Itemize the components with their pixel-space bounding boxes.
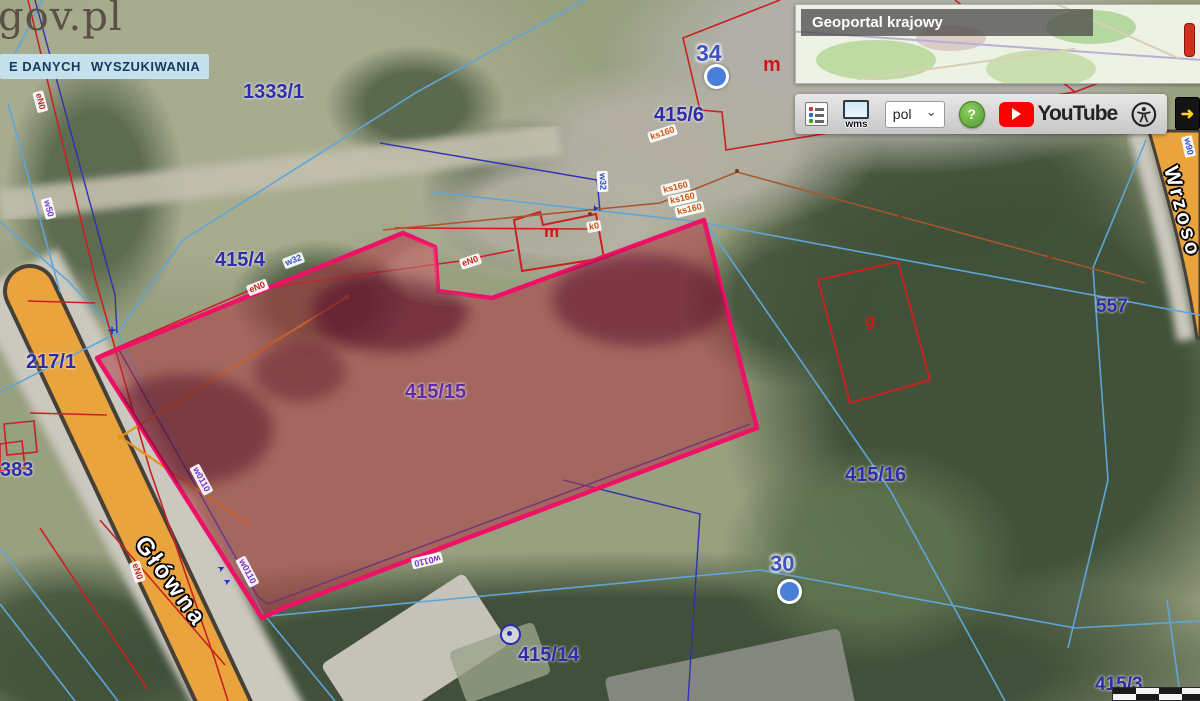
expand-panel-button[interactable]: ➜: [1175, 97, 1200, 130]
parcel-label-highlighted: 415/15: [405, 381, 466, 404]
building-label: g: [865, 311, 875, 331]
wms-service-icon[interactable]: wms: [842, 100, 871, 128]
address-point-34: [704, 64, 729, 89]
accessibility-icon[interactable]: [1131, 101, 1157, 128]
tab-dane[interactable]: E DANYCH: [0, 54, 90, 79]
map-viewport[interactable]: + ➤ ➤ ➤ 1333/1 415/6 415/4 217/1 383 415…: [0, 0, 1200, 701]
youtube-play-icon: [999, 102, 1034, 127]
minimap-title: Geoportal krajowy: [801, 9, 1093, 36]
parcel-label: 217/1: [26, 351, 76, 374]
language-value: pol: [893, 106, 912, 122]
sewer-utility-line: [383, 169, 1145, 283]
parcel-label: 415/14: [518, 644, 579, 667]
youtube-link[interactable]: YouTube: [999, 102, 1118, 127]
address-number: 34: [696, 40, 722, 67]
minimap-terrain: [986, 50, 1096, 84]
parcel-label: 415/6: [654, 104, 704, 127]
map-toolbar: wms pol ⌄ ? YouTube: [795, 94, 1167, 134]
parcel-label: 383: [0, 459, 33, 482]
building-label: m: [544, 222, 559, 242]
tab-wyszukiwania[interactable]: WYSZUKIWANIA: [82, 54, 209, 79]
survey-cross-marker: +: [108, 322, 116, 338]
parcel-label: 557: [1096, 296, 1128, 318]
address-point-30: [777, 579, 802, 604]
minimap-location-marker: [1184, 23, 1195, 57]
chevron-down-icon: ⌄: [926, 104, 937, 120]
geoportal-logo[interactable]: gov.pl: [0, 0, 123, 40]
parcel-label: 1333/1: [243, 81, 304, 104]
address-number: 30: [770, 551, 794, 577]
help-button[interactable]: ?: [959, 101, 985, 128]
minimap-terrain: [816, 40, 936, 80]
well-symbol: [500, 624, 521, 645]
youtube-label: YouTube: [1038, 102, 1118, 126]
scale-bar: [1113, 688, 1200, 700]
utility-label: w32: [597, 171, 609, 192]
building-label: m: [763, 54, 781, 77]
parcel-label: 415/16: [845, 464, 906, 487]
overview-minimap[interactable]: Geoportal krajowy: [795, 4, 1200, 84]
monitor-icon: [843, 100, 869, 119]
legend-icon[interactable]: [805, 102, 828, 126]
language-select[interactable]: pol ⌄: [885, 101, 945, 128]
parcel-label: 415/4: [215, 249, 265, 272]
